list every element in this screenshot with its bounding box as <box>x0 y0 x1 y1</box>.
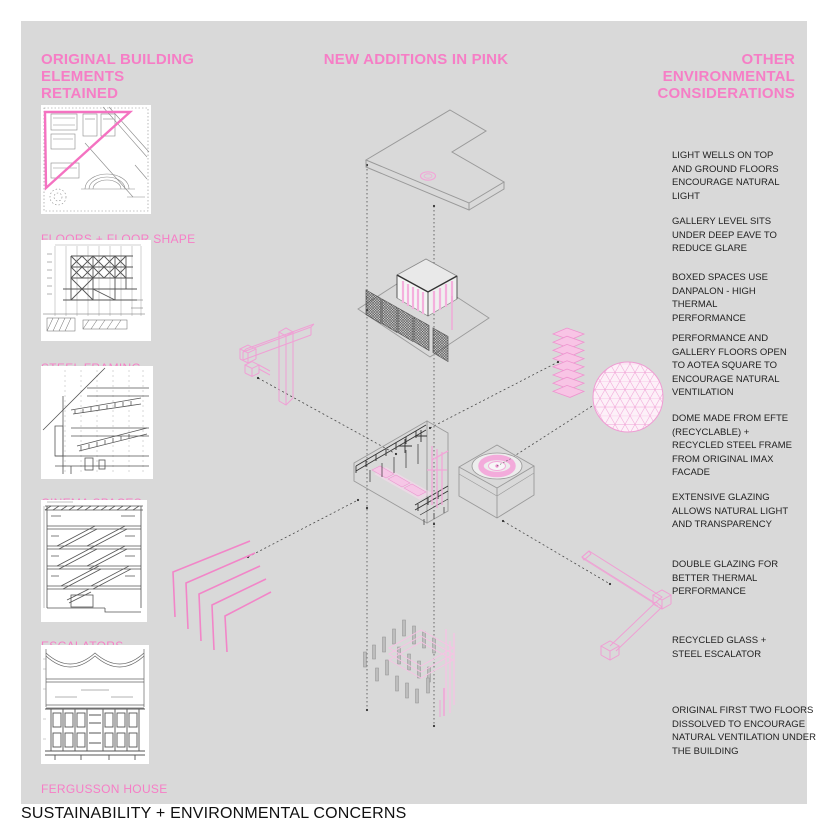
leader-end-ticks <box>247 361 611 585</box>
callout-glass-escalator <box>582 551 671 660</box>
presentation-board: ORIGINAL BUILDING ELEMENTS RETAINED NEW … <box>0 0 828 826</box>
main-structure <box>354 421 448 525</box>
pink-floor-bands <box>389 629 454 717</box>
exploded-axonometric-diagram <box>0 0 828 826</box>
board-title: SUSTAINABILITY + ENVIRONMENTAL CONCERNS <box>21 805 407 823</box>
light-well-ring <box>421 172 436 180</box>
dome-footprint-ring <box>472 453 522 479</box>
roof-plane <box>366 110 504 210</box>
callout-geodesic-dome <box>593 362 663 432</box>
callout-escalator-lines <box>173 541 271 652</box>
callout-steel-joint <box>240 324 314 405</box>
pink-escalator-bands <box>372 466 426 496</box>
dashed-leader-lines <box>248 362 610 584</box>
pink-glazing-lines <box>427 446 448 508</box>
